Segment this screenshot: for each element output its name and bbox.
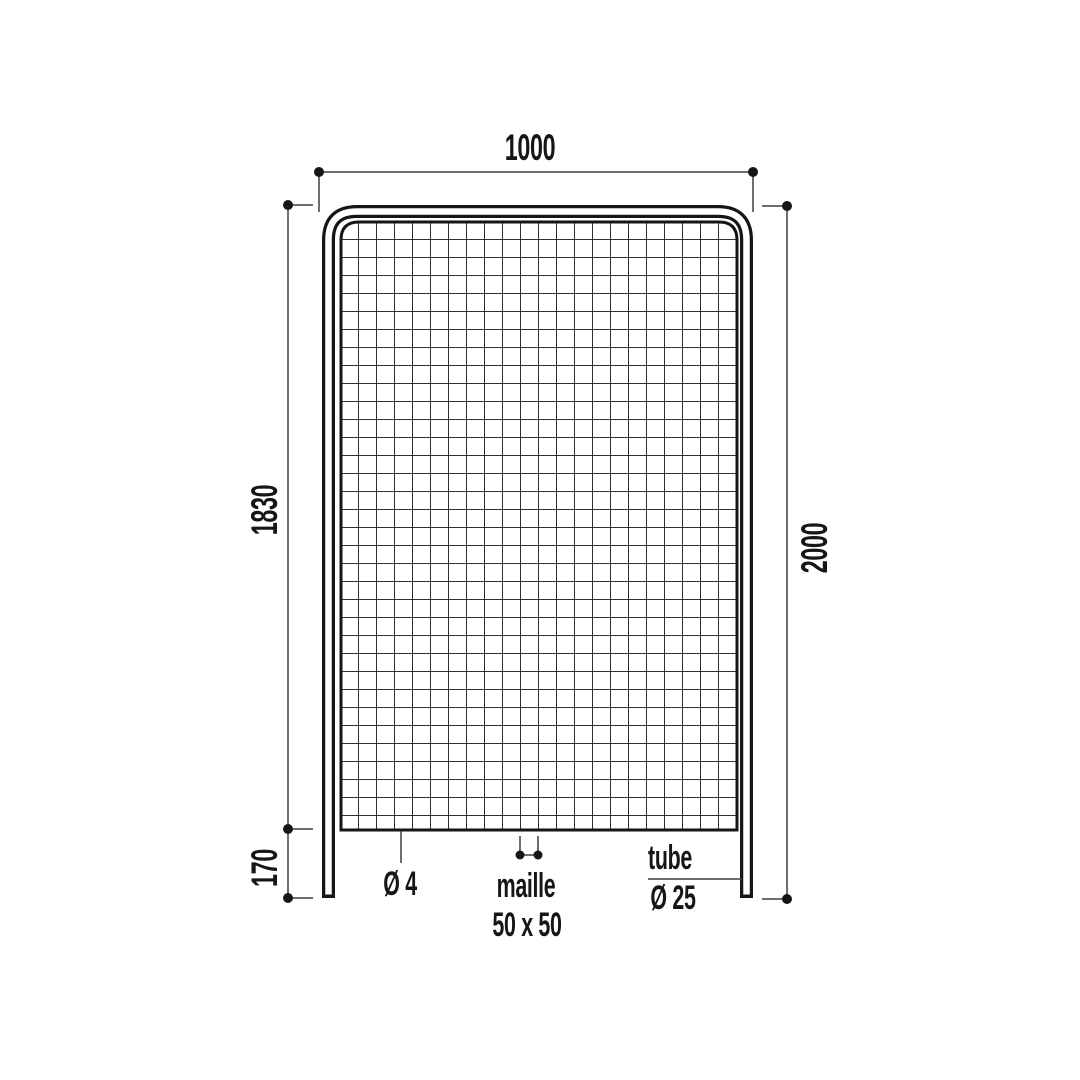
dim-label-total-height: 2000: [793, 523, 835, 574]
dimension-dot: [283, 824, 293, 834]
dim-right-column: [762, 201, 792, 904]
dimension-dot: [534, 851, 543, 860]
dimension-dot: [516, 851, 525, 860]
dimension-dot: [748, 167, 758, 177]
label-wire-diameter: Ø 4: [383, 865, 417, 903]
dim-left-column: [283, 200, 313, 903]
dimension-dot: [782, 894, 792, 904]
dim-label-leg-height: 170: [243, 849, 285, 887]
label-mesh-size: 50 x 50: [492, 906, 561, 944]
label-tube-diameter: Ø 25: [650, 879, 695, 917]
wire-mesh-panel: [341, 222, 737, 830]
fence-panel-technical-drawing: 1000 1830 170 2000 Ø 4: [0, 0, 1080, 1080]
dim-label-mesh-height: 1830: [243, 485, 285, 536]
label-tube-word: tube: [648, 839, 692, 877]
dimension-dot: [314, 167, 324, 177]
dimension-dot: [782, 201, 792, 211]
dim-label-top-width: 1000: [505, 126, 556, 168]
dimension-dot: [283, 893, 293, 903]
callout-mesh-size: [516, 836, 543, 860]
label-mesh-word: maille: [497, 867, 556, 905]
dimension-dot: [283, 200, 293, 210]
drawing-canvas: 1000 1830 170 2000 Ø 4: [0, 0, 1080, 1080]
